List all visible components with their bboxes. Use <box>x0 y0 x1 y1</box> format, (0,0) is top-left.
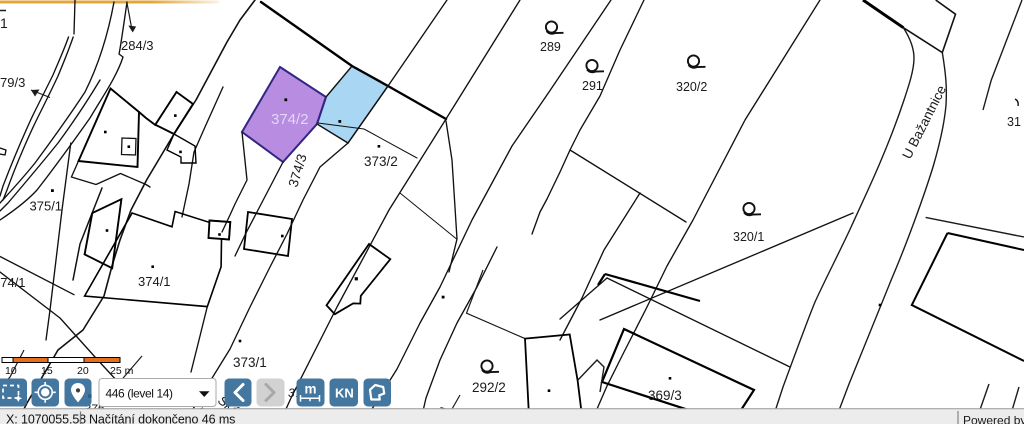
svg-text:291: 291 <box>582 79 603 93</box>
svg-text:374/2: 374/2 <box>271 111 309 128</box>
svg-text:369/3: 369/3 <box>648 388 682 403</box>
svg-text:m: m <box>305 382 317 397</box>
svg-text:320/2: 320/2 <box>676 80 707 94</box>
svg-text:446 (level 14): 446 (level 14) <box>106 386 174 400</box>
svg-text:X: 1070055.58: X: 1070055.58 <box>6 413 86 425</box>
svg-text:284/3: 284/3 <box>121 38 154 53</box>
svg-text:79/3: 79/3 <box>0 75 25 90</box>
svg-text:373/2: 373/2 <box>364 154 398 169</box>
svg-text:375/1: 375/1 <box>30 199 63 214</box>
svg-text:1: 1 <box>0 15 8 31</box>
svg-text:374/1: 374/1 <box>0 275 26 290</box>
svg-text:31: 31 <box>1007 115 1021 129</box>
svg-text:Powered by: Powered by <box>963 414 1024 425</box>
svg-text:10: 10 <box>5 365 17 377</box>
svg-text:374/1: 374/1 <box>138 274 171 289</box>
svg-text:15: 15 <box>41 365 53 377</box>
svg-text:373/1: 373/1 <box>233 355 267 370</box>
svg-text:289: 289 <box>540 40 561 54</box>
svg-text:292/2: 292/2 <box>472 380 506 395</box>
svg-text:20: 20 <box>77 365 89 377</box>
svg-text:320/1: 320/1 <box>733 230 764 244</box>
svg-text:KN: KN <box>335 386 354 401</box>
svg-text:Načítání dokončeno 46 ms: Načítání dokončeno 46 ms <box>89 413 235 425</box>
svg-text:25 m: 25 m <box>110 365 134 377</box>
